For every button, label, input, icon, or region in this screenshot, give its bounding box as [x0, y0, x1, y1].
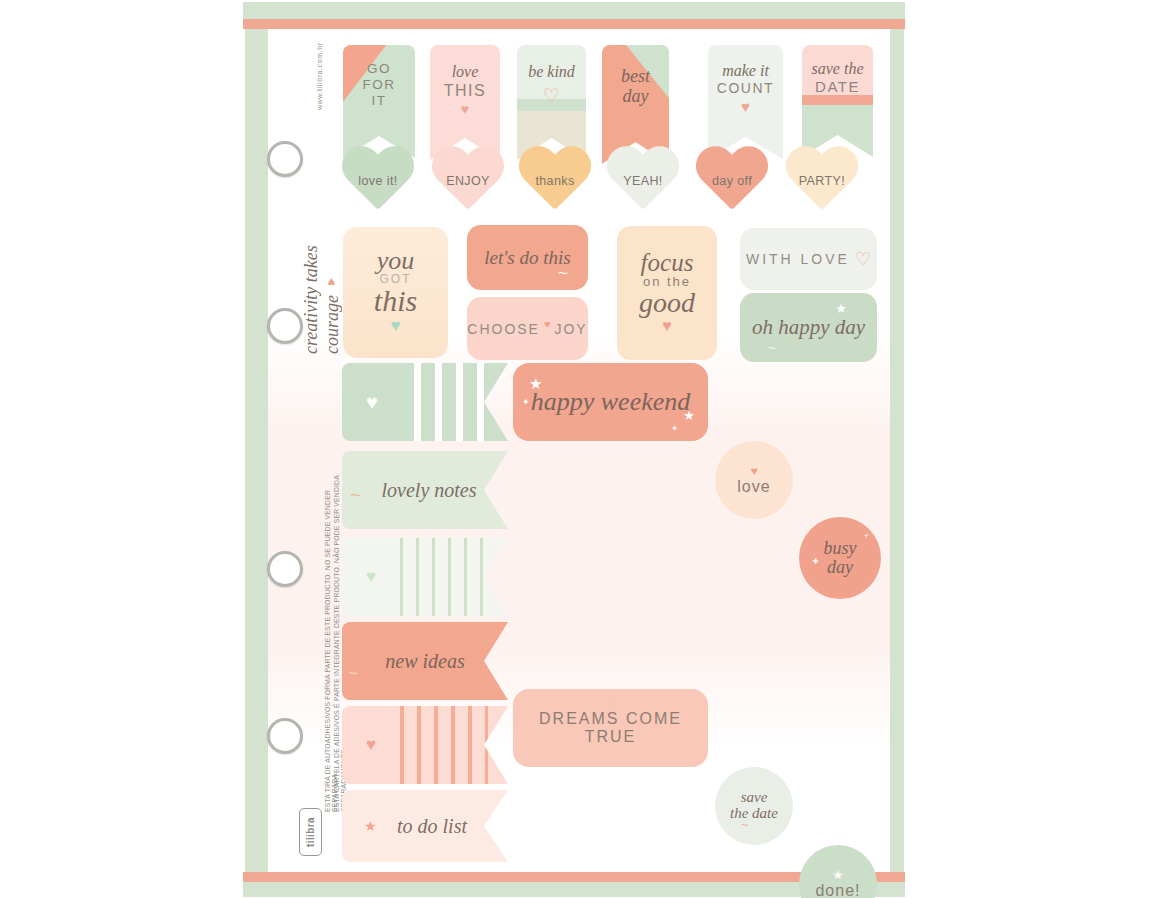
banner-label-script: love	[452, 63, 479, 81]
sticker-flag-striped-mint: ♥	[342, 538, 508, 616]
banner-label-caps: DATE	[815, 78, 860, 96]
banner-label-script: save the	[812, 60, 864, 78]
heart-label: PARTY!	[784, 174, 860, 188]
punch-hole	[267, 308, 303, 344]
tilibra-logo-text: tilibra	[305, 817, 316, 847]
heart-icon: ♥	[461, 101, 469, 117]
sparkle-icon: ✦	[811, 555, 820, 568]
sticker-flag-striped-pink: ♥	[342, 706, 508, 784]
sheet-border-top-green	[243, 2, 905, 19]
sticker-flag-new-ideas: ~ new ideas	[342, 622, 508, 700]
stripe-pattern	[400, 538, 488, 616]
sticker-flag-lovely-notes: ~ lovely notes	[342, 451, 508, 529]
flag-label: new ideas	[385, 650, 464, 673]
stripe-pattern	[400, 363, 488, 441]
sticker-heart-yeah: YEAH!	[605, 148, 681, 216]
flourish-icon: ~	[768, 339, 777, 356]
flag-label: to do list	[397, 815, 467, 838]
banner-label: GO FOR IT	[363, 61, 396, 110]
heart-icon: ♥	[750, 464, 757, 478]
heart-icon: ♥	[741, 98, 750, 115]
stripe-pattern	[400, 706, 488, 784]
heart-outline-icon: ♡	[543, 84, 560, 107]
sticker-heart-enjoy: ENJOY	[430, 148, 506, 216]
card-label: DREAMS COME TRUE	[513, 710, 708, 746]
banner-label-script: make it	[722, 62, 769, 80]
punch-hole	[267, 551, 303, 587]
legal-text-es: ESTA TIRA DE AUTOADHESIVOS FORMA PARTE D…	[324, 460, 338, 812]
tagline-text: creativity takes courage	[301, 245, 342, 354]
sparkle-icon: ✦	[522, 397, 530, 407]
circle-label: love	[737, 478, 770, 496]
card-word: JOY	[554, 321, 587, 337]
heart-icon: ♥	[390, 316, 400, 336]
banner-label-script: be kind	[528, 63, 575, 81]
circle-label: done!	[815, 882, 860, 898]
heart-icon: ♥	[324, 275, 339, 290]
heart-icon: ♥	[366, 567, 376, 587]
card-word: CHOOSE	[467, 321, 540, 337]
sticker-lets-do-this: let's do this ~	[467, 225, 588, 290]
flourish-icon: ~	[348, 663, 359, 684]
heart-icon: ♥	[366, 391, 378, 414]
banner-label-caps: THIS	[444, 81, 486, 100]
circle-label: save the date	[730, 790, 778, 822]
flourish-icon: ~	[741, 817, 749, 832]
star-icon: ★	[833, 868, 844, 882]
sheet-border-right-green	[890, 29, 904, 872]
sheet-border-top-salmon	[243, 19, 905, 29]
star-icon: ★	[364, 818, 377, 834]
sticker-flag-to-do-list: ★ to do list	[342, 790, 508, 862]
heart-icon: ♥	[366, 735, 376, 755]
website-url: www.tilibra.com.br	[316, 46, 323, 110]
plus-icon: +	[864, 531, 869, 541]
sticker-heart-party: PARTY!	[784, 148, 860, 216]
sparkle-icon: ✦	[671, 424, 678, 433]
card-word: you	[377, 249, 415, 272]
flourish-icon: ~	[557, 263, 568, 284]
sticker-choose-joy: CHOOSE ♥ JOY	[467, 297, 588, 360]
flourish-icon: ~	[350, 485, 361, 506]
sticker-circle-save-the-date: save the date ~	[715, 767, 793, 845]
sticker-flag-striped-green: ♥	[342, 363, 508, 441]
heart-outline-icon: ♡	[855, 248, 871, 270]
tilibra-logo: tilibra	[299, 808, 322, 856]
star-icon: ★	[529, 375, 542, 393]
flag-label: lovely notes	[382, 479, 477, 502]
sticker-focus-on-the-good: focus on the good ♥	[617, 226, 717, 360]
heart-outline-icon: ♡	[607, 699, 616, 710]
tagline: creativity takes courage ♥	[301, 182, 343, 354]
star-icon: ★	[683, 408, 695, 423]
sticker-heart-thanks: thanks	[517, 148, 593, 216]
card-word: focus	[641, 251, 694, 275]
banner-label-caps: COUNT	[717, 80, 774, 97]
card-label: oh happy day	[752, 315, 865, 340]
sticker-dreams-come-true: DREAMS COME TRUE ♡	[513, 689, 708, 767]
heart-icon: ♥	[544, 318, 551, 330]
sticker-circle-love: ♥ love	[715, 441, 793, 519]
sticker-with-love: WITH LOVE ♡	[740, 228, 877, 290]
sticker-happy-weekend: happy weekend ★ ✦ ★ ✦	[513, 363, 708, 441]
sticker-heart-day-off: day off	[694, 148, 770, 216]
heart-label: YEAH!	[605, 174, 681, 188]
circle-label: busy day	[824, 539, 857, 577]
card-label: happy weekend	[531, 387, 691, 417]
punch-hole	[267, 141, 303, 177]
star-icon: ★	[835, 301, 847, 316]
sticker-circle-busy-day: busy day ✦ +	[799, 517, 881, 599]
sheet-border-left-green	[245, 29, 268, 872]
card-word: this	[374, 286, 417, 316]
card-word: good	[639, 289, 695, 317]
sticker-you-got-this: you GOT this ♥	[343, 227, 448, 358]
sticker-oh-happy-day: oh happy day ★ ~	[740, 293, 877, 362]
card-label: WITH LOVE	[746, 251, 850, 267]
punch-hole	[267, 718, 303, 754]
heart-icon: ♥	[662, 317, 672, 335]
banner-label: best day	[621, 67, 650, 107]
sticker-heart-love-it: love it!	[340, 148, 416, 216]
sticker-sheet-photo: www.tilibra.com.br creativity takes cour…	[0, 0, 1160, 898]
heart-label: ENJOY	[430, 174, 506, 188]
heart-label: day off	[694, 174, 770, 188]
heart-label: love it!	[340, 174, 416, 188]
heart-label: thanks	[517, 174, 593, 188]
